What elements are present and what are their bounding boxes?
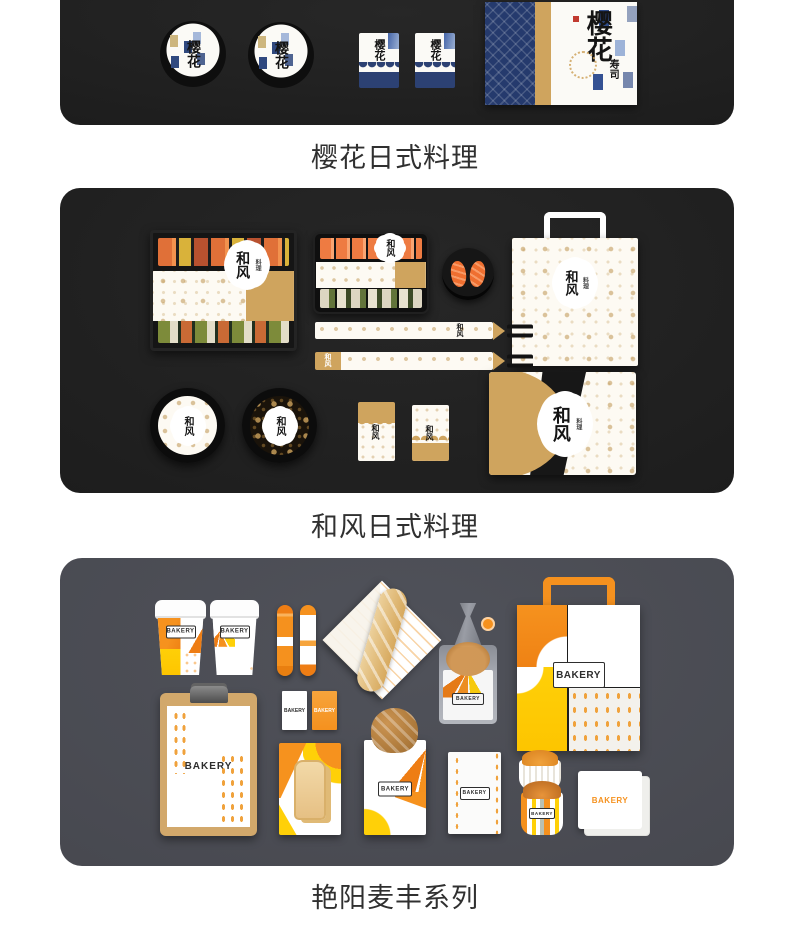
- wafu-bag-badge: 和风料理: [557, 262, 593, 304]
- wafu-plate-light: 和风: [150, 388, 225, 463]
- sakura-plate-1: 樱花: [160, 21, 226, 87]
- wafu-card-2: 和风: [412, 405, 449, 461]
- wafu-sleeve-1-logo: 和风: [455, 323, 465, 337]
- bakery-snack-stick-2: [300, 605, 316, 676]
- wafu-card-1: 和风: [358, 402, 395, 461]
- page: 樱花 樱花 樱花 樱花 樱花 寿司 樱花日式料理 和风料理 和风 和风料理 和风…: [0, 0, 790, 931]
- bakery-letterhead: BAKERY: [167, 706, 250, 827]
- bakery-card-white: BAKERY: [282, 691, 307, 730]
- sakura-plate-1-logo: 樱花: [183, 40, 203, 68]
- bakery-cup-2-label: BAKERY: [220, 625, 250, 638]
- sakura-plate-2-logo: 樱花: [271, 41, 291, 69]
- bakery-bread-bag-logo: BAKERY: [452, 693, 484, 705]
- bakery-mockup-image[interactable]: BAKERY BAKERY BAKERY BAKERY BAKERY: [60, 558, 734, 866]
- sakura-caption: 樱花日式料理: [0, 138, 790, 178]
- sakura-box-subtitle: 寿司: [605, 59, 620, 79]
- wafu-bento-box: 和风料理: [150, 230, 297, 351]
- bakery-muffin-cup-2: BAKERY: [521, 792, 563, 835]
- wafu-tray-logo: 和风: [383, 239, 396, 257]
- bakery-cup-1-label: BAKERY: [166, 625, 196, 638]
- bakery-napkin-bag: BAKERY: [448, 752, 501, 834]
- wafu-plate-dark-logo: 和风: [272, 416, 287, 436]
- sakura-box-logo: 樱花: [579, 10, 616, 62]
- sakura-card-1-logo: 樱花: [371, 39, 387, 88]
- bakery-coffee-cup-2: BAKERY: [209, 600, 260, 675]
- wafu-chopstick-sleeve-2: 和风: [315, 352, 493, 370]
- wafu-bag-logo: 和风: [561, 270, 580, 296]
- wafu-bento-band: [153, 271, 294, 321]
- wafu-gift-box: 和风料理: [489, 372, 636, 475]
- bakery-bread-bag-label: BAKERY: [443, 670, 493, 720]
- wafu-plate-dark: 和风: [242, 388, 317, 463]
- bakery-napkins: BAKERY: [578, 771, 642, 829]
- wafu-bag-subtitle: 料理: [581, 277, 590, 289]
- wafu-sushi-tray: 和风: [313, 232, 429, 314]
- wafu-card-2-logo: 和风: [425, 425, 436, 441]
- bakery-card-white-logo: BAKERY: [284, 708, 305, 714]
- sakura-seal-stamp: [573, 16, 579, 22]
- bakery-wrap-paper: [323, 581, 442, 700]
- wafu-plate-dark-badge: 和风: [267, 411, 293, 441]
- wafu-tray-badge: 和风: [379, 238, 401, 258]
- sakura-plate-2: 樱花: [248, 22, 314, 88]
- bakery-coffee-cup-1: BAKERY: [154, 600, 207, 675]
- wafu-shopping-bag: 和风料理: [512, 212, 638, 366]
- bakery-clipboard: BAKERY: [160, 693, 257, 836]
- bakery-napkins-logo: BAKERY: [592, 796, 628, 805]
- bakery-baguette-wrap: [326, 584, 438, 698]
- bakery-napkin-bag-logo: BAKERY: [460, 787, 490, 800]
- wafu-sleeve-2-logo: 和风: [323, 353, 333, 367]
- wafu-gift-subtitle: 料理: [574, 418, 583, 430]
- sakura-mockup-image[interactable]: 樱花 樱花 樱花 樱花 樱花 寿司: [60, 0, 734, 125]
- wafu-caption: 和风日式料理: [0, 507, 790, 547]
- bakery-card-orange: BAKERY: [312, 691, 337, 730]
- bakery-loaf-bag-logo: BAKERY: [378, 782, 412, 797]
- wafu-tray-band: [316, 262, 426, 288]
- sakura-card-1: 樱花: [359, 33, 399, 88]
- bakery-caption: 艳阳麦丰系列: [0, 878, 790, 918]
- bakery-bread-bag: BAKERY: [439, 603, 497, 724]
- wafu-bento-logo: 和风: [232, 251, 252, 279]
- wafu-plate-light-logo: 和风: [180, 416, 195, 436]
- wafu-gift-logo: 和风: [547, 406, 573, 442]
- sakura-card-2-logo: 樱花: [427, 39, 443, 88]
- bakery-shopping-bag-label: BAKERY: [553, 662, 605, 688]
- bakery-muffin-cup-2-logo: BAKERY: [529, 808, 555, 819]
- bakery-bread-bag-body: BAKERY: [439, 645, 497, 724]
- wafu-card-1-logo: 和风: [371, 424, 382, 440]
- bakery-card-orange-logo: BAKERY: [314, 708, 335, 714]
- wafu-bento-subtitle: 料理: [253, 259, 262, 271]
- wafu-salmon-plate: [442, 248, 494, 300]
- wafu-mockup-image[interactable]: 和风料理 和风 和风料理 和风 和风 和风 和风 和风 和风 和风料理: [60, 188, 734, 493]
- sakura-card-2: 樱花: [415, 33, 455, 88]
- sakura-gift-box: 樱花 寿司: [485, 2, 637, 105]
- wafu-chopstick-sleeve-1: 和风: [315, 322, 493, 339]
- bakery-shopping-bag: BAKERY: [517, 577, 640, 751]
- wafu-plate-light-badge: 和风: [175, 411, 201, 441]
- bakery-letterhead-logo: BAKERY: [185, 761, 233, 772]
- wafu-bento-badge: 和风料理: [229, 245, 265, 285]
- bakery-loaf-bag: BAKERY: [364, 708, 426, 835]
- wafu-gift-badge: 和风料理: [542, 396, 588, 452]
- bakery-toast-bag: [279, 743, 341, 835]
- bakery-snack-stick-1: [277, 605, 293, 676]
